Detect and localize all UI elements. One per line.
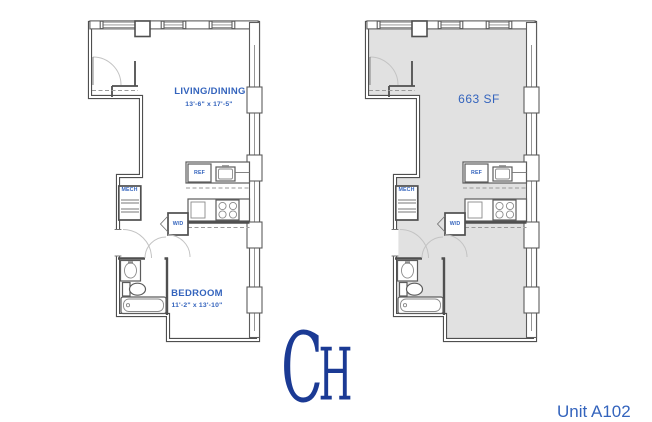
fixture-label-wd-left: W/D: [173, 222, 184, 228]
room-dims-bedroom: 11'-2" x 13'-10": [171, 302, 222, 309]
area-label-663sf: 663 SF: [458, 93, 500, 106]
logo-letter-c: C: [281, 312, 323, 416]
floorplan-sheet: C H LIVING/DINING 13'-6" x 17'-5" BEDROO…: [0, 0, 652, 416]
right-floorplan-shaded: [367, 21, 539, 340]
fixture-label-mech-right: MECH: [399, 188, 415, 194]
fixture-label-wd-right: W/D: [450, 222, 461, 228]
room-label-living-dining: LIVING/DINING: [174, 87, 245, 97]
fixture-label-ref-left: REF: [194, 171, 205, 177]
room-dims-living-dining: 13'-6" x 17'-5": [185, 101, 232, 108]
fixture-label-ref-right: REF: [471, 171, 482, 177]
fixture-label-mech-left: MECH: [122, 188, 138, 194]
floorplan-graphic: C H: [0, 0, 652, 416]
logo-letter-h: H: [319, 333, 353, 417]
logo: C H: [281, 312, 353, 416]
unit-number-label: Unit A102: [557, 402, 631, 422]
room-label-bedroom: BEDROOM: [171, 289, 223, 299]
